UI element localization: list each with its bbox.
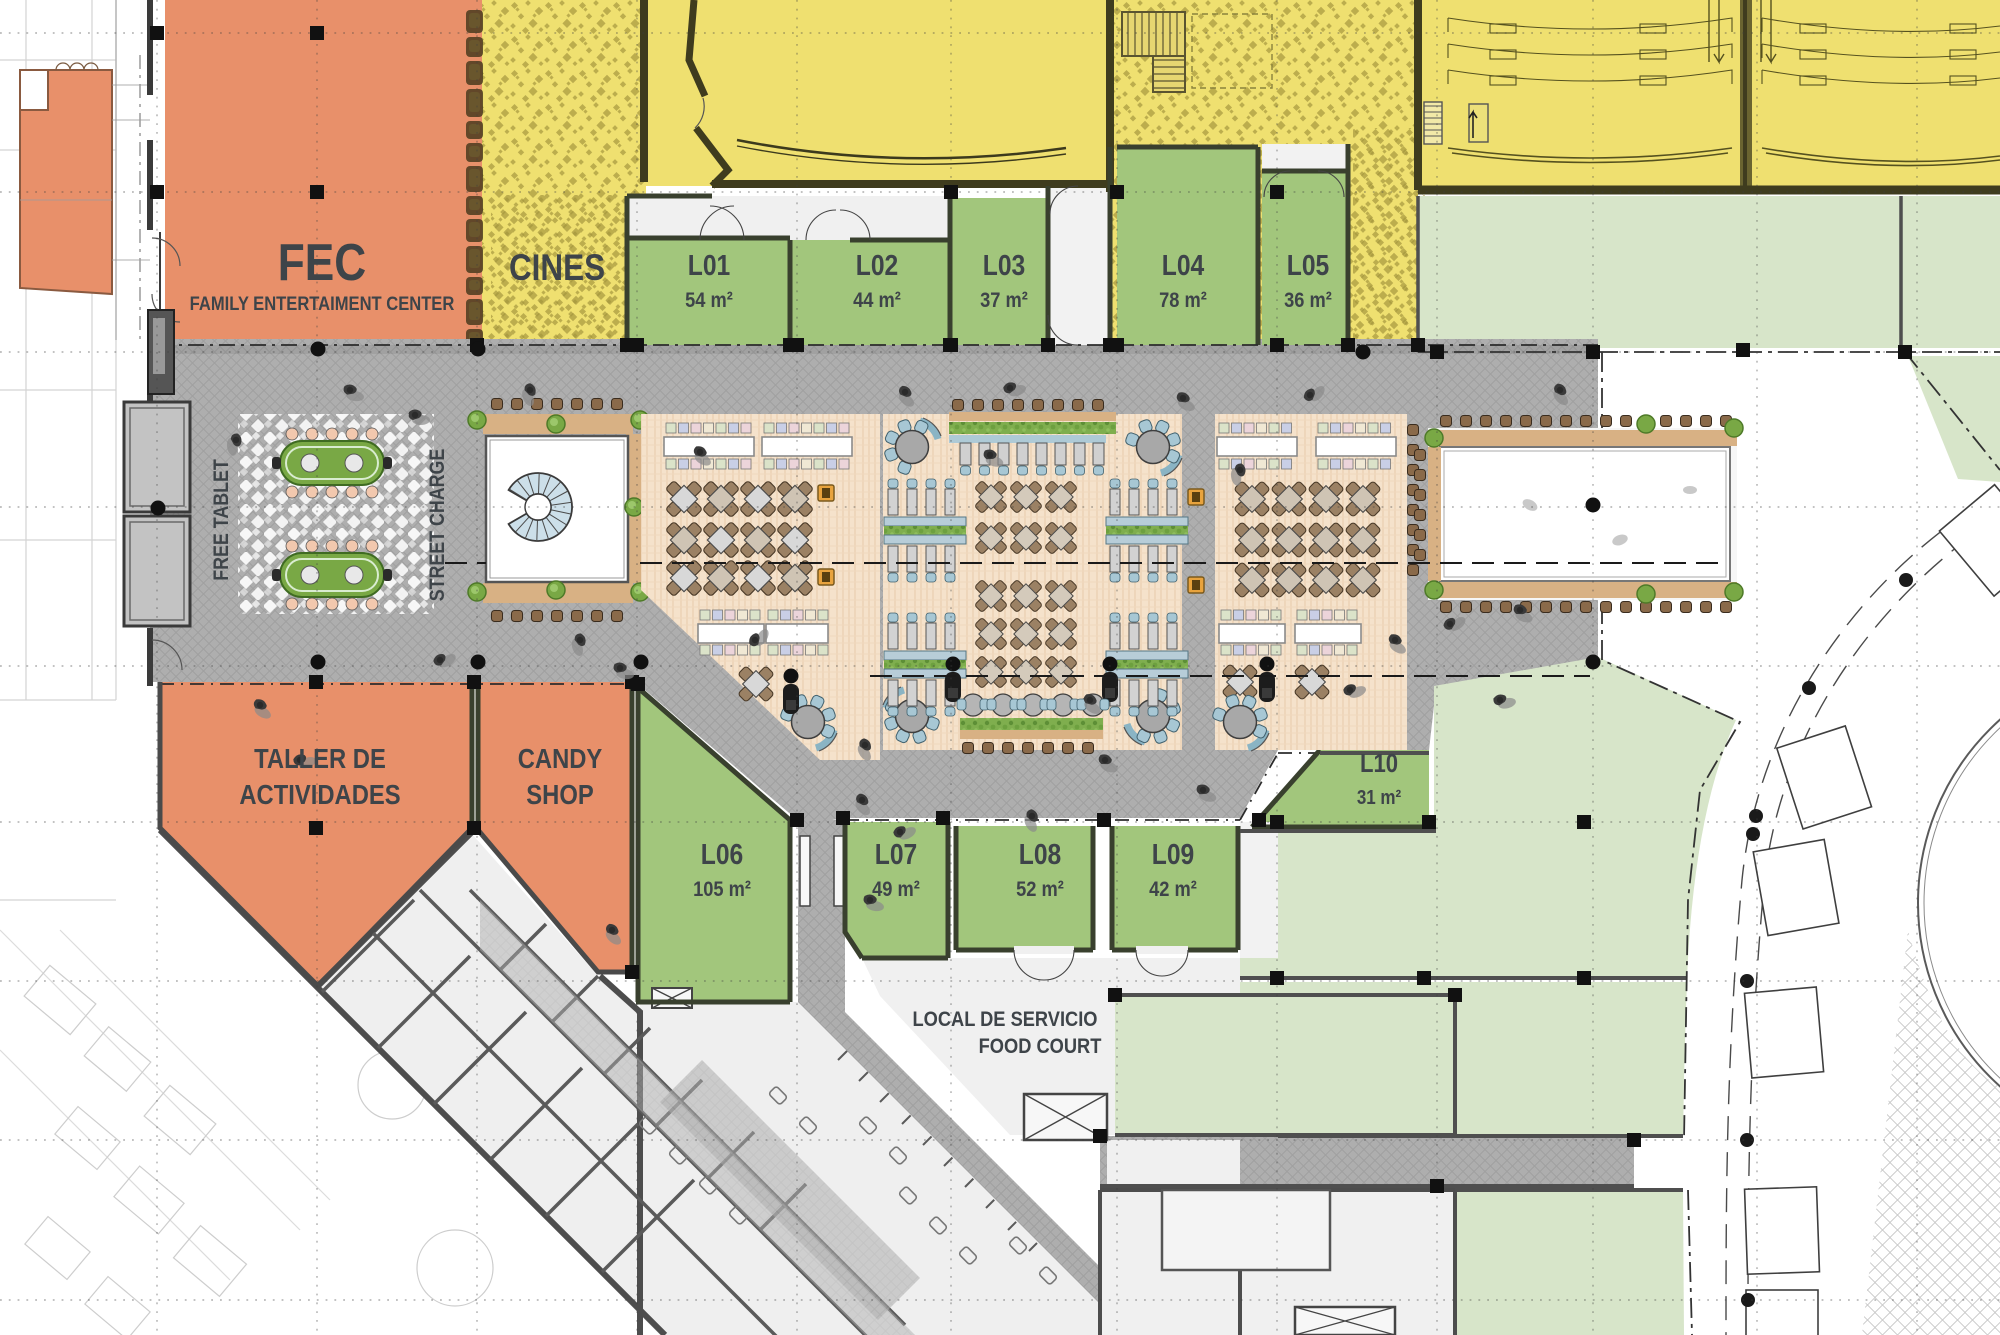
svg-text:FREE TABLET: FREE TABLET xyxy=(210,459,234,581)
svg-text:TALLER DE: TALLER DE xyxy=(254,742,386,774)
svg-text:L02: L02 xyxy=(856,249,898,281)
svg-text:SHOP: SHOP xyxy=(526,778,593,810)
svg-text:42 m²: 42 m² xyxy=(1149,878,1197,902)
svg-text:44 m²: 44 m² xyxy=(853,289,901,313)
svg-text:L10: L10 xyxy=(1360,749,1398,778)
svg-text:L03: L03 xyxy=(983,249,1025,281)
svg-text:FOOD COURT: FOOD COURT xyxy=(979,1035,1102,1059)
svg-text:36 m²: 36 m² xyxy=(1284,289,1332,313)
svg-text:54 m²: 54 m² xyxy=(685,289,733,313)
svg-text:CINES: CINES xyxy=(509,248,605,289)
svg-text:CANDY: CANDY xyxy=(518,742,603,774)
svg-text:L08: L08 xyxy=(1019,838,1061,870)
svg-text:78 m²: 78 m² xyxy=(1159,289,1207,313)
svg-text:31 m²: 31 m² xyxy=(1357,786,1401,809)
svg-text:L05: L05 xyxy=(1287,249,1329,281)
svg-text:105 m²: 105 m² xyxy=(693,878,751,902)
svg-text:FEC: FEC xyxy=(278,234,366,292)
svg-text:L09: L09 xyxy=(1152,838,1194,870)
svg-text:L01: L01 xyxy=(688,249,730,281)
svg-text:L06: L06 xyxy=(701,838,743,870)
svg-text:37 m²: 37 m² xyxy=(980,289,1028,313)
svg-text:LOCAL DE SERVICIO: LOCAL DE SERVICIO xyxy=(912,1008,1097,1032)
svg-text:52 m²: 52 m² xyxy=(1016,878,1064,902)
svg-text:FAMILY ENTERTAIMENT CENTER: FAMILY ENTERTAIMENT CENTER xyxy=(190,293,455,315)
svg-text:STREET CHARGE: STREET CHARGE xyxy=(426,449,450,602)
svg-text:49 m²: 49 m² xyxy=(872,878,920,902)
svg-text:L04: L04 xyxy=(1162,249,1204,281)
svg-text:L07: L07 xyxy=(875,838,917,870)
svg-text:ACTIVIDADES: ACTIVIDADES xyxy=(239,778,400,810)
